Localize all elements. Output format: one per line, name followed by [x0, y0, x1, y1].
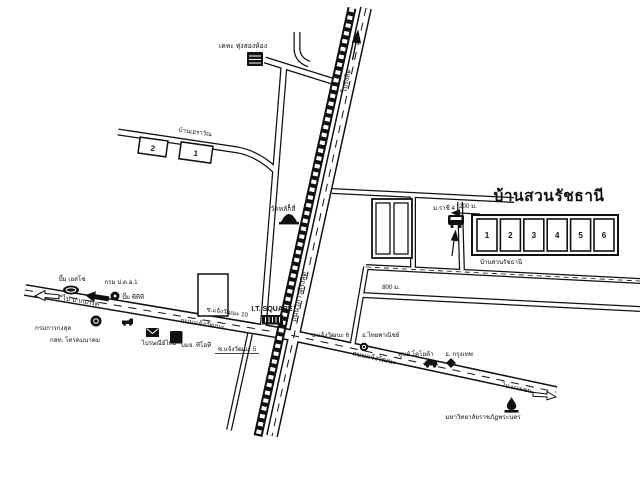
road-fill	[361, 295, 640, 309]
road-fill	[263, 66, 284, 330]
bus-window	[451, 217, 462, 220]
scb-bank-icon	[360, 343, 368, 351]
cat-telecom-label: กสท. โทรคมนาคม	[50, 336, 100, 344]
block-number: 3	[532, 231, 537, 240]
dist-800m-label: 800 ม.	[382, 284, 400, 291]
vehicle-icon	[122, 319, 133, 326]
por-tor-or-label: กรม ป.ต.อ.1	[104, 279, 138, 286]
block-number: 6	[602, 231, 607, 240]
block-number: 2	[508, 231, 513, 240]
kheha-label: เคหะ ทุ่งสองห้อง	[219, 42, 267, 50]
house-1: 1	[179, 142, 213, 163]
estate-block: 4	[547, 219, 567, 251]
wheel	[123, 323, 126, 326]
bus-stop-label: ม.ราชี 4	[433, 204, 456, 212]
wheel	[426, 364, 429, 367]
it-square-label: I.T. SQUARE	[251, 306, 293, 313]
soi-5-label-group: ซ.แจ้งวัฒนะ 5	[215, 345, 259, 354]
bus-wheel	[458, 225, 461, 228]
oval	[63, 286, 79, 295]
cluster-row	[376, 203, 390, 254]
consular-icon	[91, 316, 102, 327]
housing-cluster	[372, 199, 412, 258]
estate-block: 1	[477, 219, 497, 251]
flame	[507, 397, 516, 410]
estate-block: 2	[500, 219, 520, 251]
ptt-label: ปั๊ม พีทีที	[122, 292, 144, 301]
circle	[91, 316, 102, 327]
road-fill	[265, 60, 332, 81]
estate-name-label: บ้านสวนรัชธานี	[480, 258, 523, 266]
erawan-houses: 2 1 บ้านเอราวัณ	[138, 126, 213, 163]
cluster-row	[394, 203, 408, 254]
estate-block: 5	[571, 219, 591, 251]
wat-lak-si-label: วัดหลักสี่	[270, 204, 296, 213]
toyota-label: ศูนย์ โตโยต้า	[398, 350, 433, 358]
erawan-label: บ้านเอราวัณ	[178, 126, 213, 139]
it-square-icon	[262, 315, 283, 325]
envelope-icon	[146, 328, 159, 337]
ptt-pump-icon	[111, 292, 120, 301]
housing-estate-icon	[247, 52, 263, 66]
estate-block: 3	[524, 219, 544, 251]
block-number: 4	[555, 231, 560, 240]
dome	[281, 214, 297, 222]
circle	[360, 343, 368, 351]
soi-6-label: ซ.แจ้งวัฒนะ 6	[311, 331, 350, 339]
estate-block: 6	[594, 219, 614, 251]
map-canvas: 2 1 บ้านเอราวัณ 1 2 3 4 5	[0, 0, 640, 480]
tot-label: บมจ. ทีโอที	[181, 341, 211, 349]
road-fill	[332, 191, 514, 200]
map-page: 2 1 บ้านเอราวัณ 1 2 3 4 5	[0, 0, 640, 480]
road-fill	[460, 202, 462, 272]
esso-pump-icon	[63, 286, 79, 295]
university-icon	[505, 397, 519, 413]
entrance-arrow	[452, 231, 459, 256]
pedestal	[505, 410, 519, 413]
block-number: 5	[578, 231, 583, 240]
thailand-post-label: ไปรษณีย์ไทย	[141, 339, 177, 347]
truck-body	[122, 319, 133, 325]
base	[279, 222, 299, 224]
esso-label: ปั๊ม เอสโซ่	[59, 274, 86, 283]
consular-label: กรมการกงสุล	[35, 325, 71, 332]
estate-title-red: บ้านสวนรัชธานี	[493, 187, 604, 205]
bangkok-bank-label: ธ. กรุงเทพ	[445, 351, 473, 358]
house-2: 2	[138, 137, 168, 157]
wheel	[129, 323, 132, 326]
scb-bank-label: ธ.ไทยพาณิชย์	[362, 331, 400, 339]
university-label: มหาวิทยาลัยราชภัฏพระนคร	[445, 414, 521, 421]
soi-5-label: ซ.แจ้งวัฒนะ 5	[218, 345, 257, 353]
bus-wheel	[450, 225, 453, 228]
wheel	[433, 364, 436, 367]
arrow-head	[452, 231, 459, 241]
dist-200m-label: 200 ม.	[459, 203, 477, 210]
block-number: 1	[485, 231, 490, 240]
estate-blocks: 1 2 3 4 5 6	[472, 215, 618, 255]
road-fill	[297, 32, 309, 64]
dot	[114, 295, 117, 298]
